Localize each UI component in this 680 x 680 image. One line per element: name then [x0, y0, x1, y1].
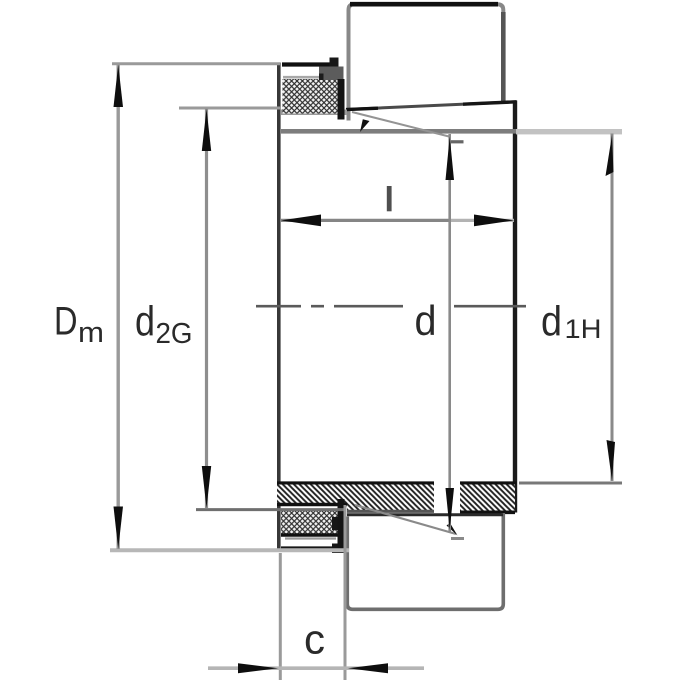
svg-text:c: c: [304, 616, 325, 663]
svg-text:D: D: [54, 300, 78, 344]
svg-text:d: d: [415, 297, 437, 344]
svg-text:d: d: [541, 298, 562, 345]
svg-text:d: d: [135, 298, 155, 345]
svg-text:2G: 2G: [156, 318, 193, 350]
svg-text:m: m: [78, 317, 104, 349]
svg-text:1H: 1H: [565, 314, 602, 344]
